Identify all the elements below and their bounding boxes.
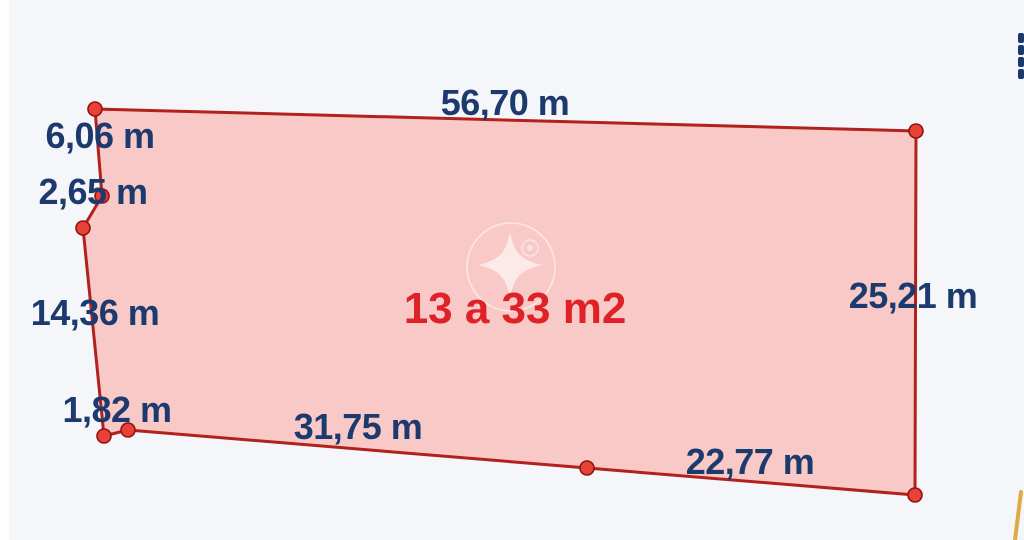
vertex-dot <box>76 221 90 235</box>
dimension-label-left-upper: 6,06 m <box>45 118 154 154</box>
dimension-label-bottom-mid: 31,75 m <box>294 409 423 445</box>
vertex-dot <box>97 429 111 443</box>
dimension-label-top: 56,70 m <box>441 85 570 121</box>
dimension-label-bottom-left: 1,82 m <box>62 392 171 428</box>
clipped-text-mark <box>1018 45 1024 55</box>
vertex-dot <box>580 461 594 475</box>
clipped-text-mark <box>1018 33 1024 43</box>
clipped-text-marks <box>1018 33 1024 79</box>
dimension-label-bottom-right: 22,77 m <box>686 444 815 480</box>
dimension-label-right: 25,21 m <box>849 278 978 314</box>
vertex-dot <box>908 488 922 502</box>
vertex-dot <box>88 102 102 116</box>
adjacent-boundary-line <box>1015 492 1021 540</box>
land-plot-sketch: 56,70 m 6,06 m 2,65 m 14,36 m 1,82 m 31,… <box>0 0 1024 540</box>
plot-drawing <box>0 0 1024 540</box>
clipped-text-mark <box>1018 69 1024 79</box>
dimension-label-left-lower: 14,36 m <box>31 295 160 331</box>
clipped-text-mark <box>1018 57 1024 67</box>
vertex-dot <box>909 124 923 138</box>
dimension-label-left-mid: 2,65 m <box>38 174 147 210</box>
area-label: 13 a 33 m2 <box>404 287 627 331</box>
